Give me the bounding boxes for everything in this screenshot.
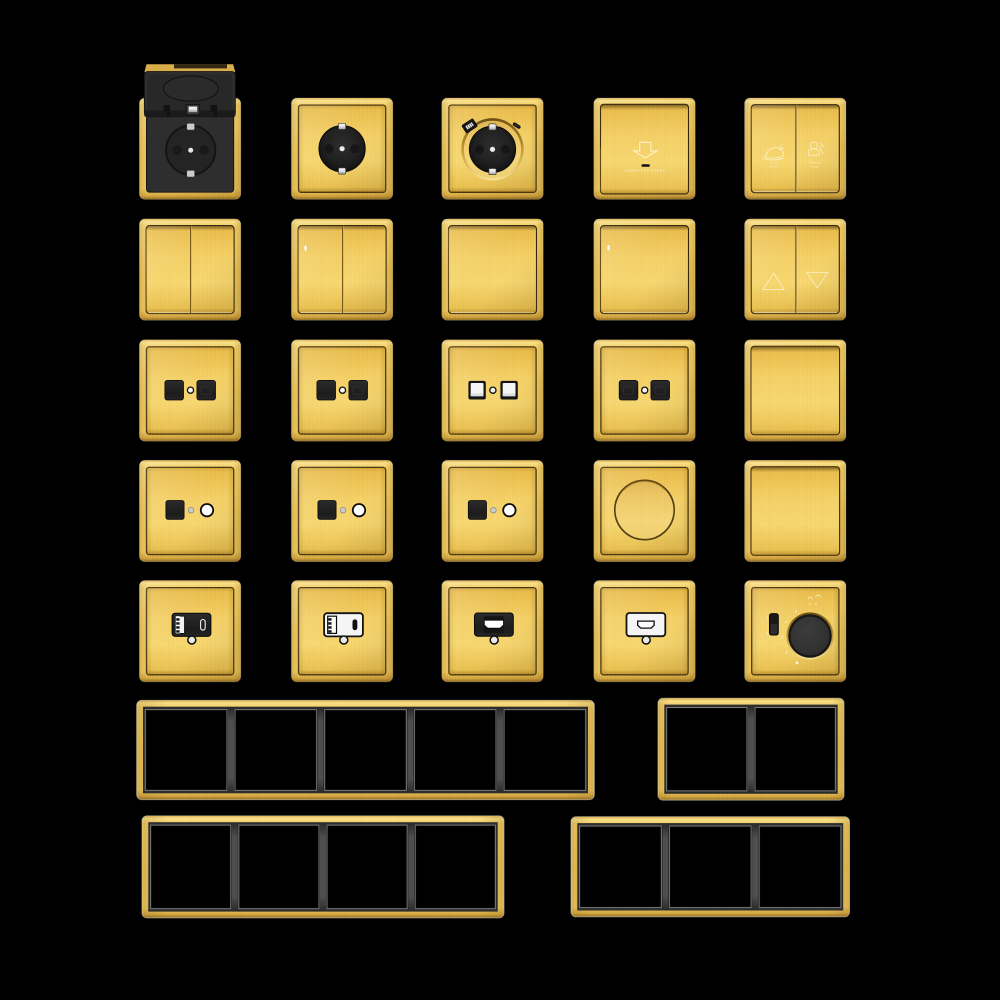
svg-text:room: room [811, 164, 818, 168]
svg-text:1: 1 [766, 614, 769, 619]
svg-text:INSERT FOR POWER: INSERT FOR POWER [625, 169, 665, 173]
svg-text:0: 0 [766, 631, 769, 636]
svg-text:disturb: disturb [769, 164, 778, 168]
